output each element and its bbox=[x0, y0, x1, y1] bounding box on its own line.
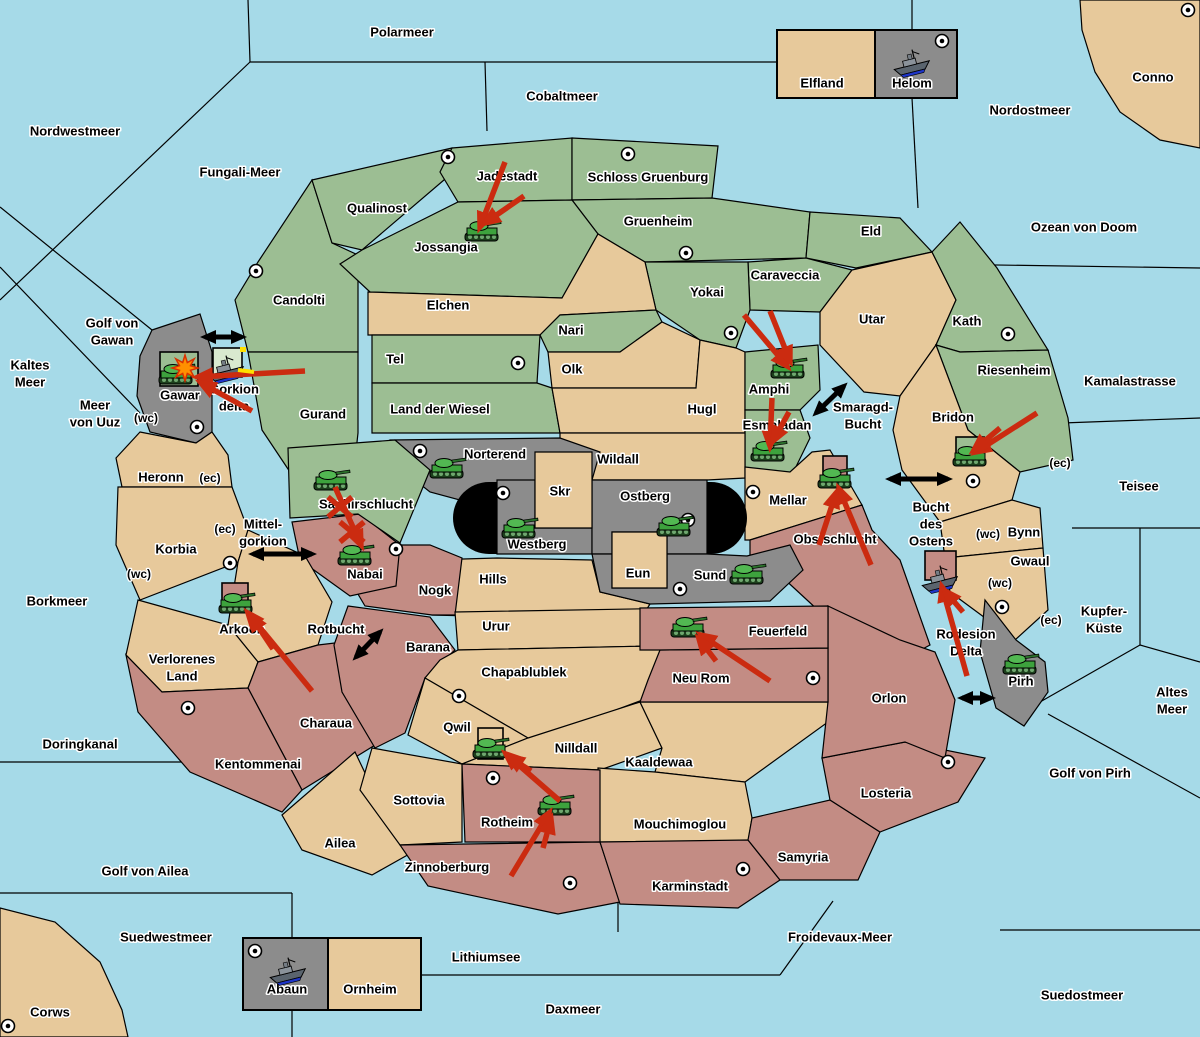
region-label-kaaldewaa: Kaaldewaa bbox=[625, 754, 693, 769]
region-label-orlon: Orlon bbox=[872, 690, 907, 705]
region-label-urur: Urur bbox=[482, 618, 509, 633]
tank-icon-ostberg[interactable] bbox=[657, 516, 693, 536]
region-label-corws: Corws bbox=[30, 1004, 70, 1019]
tank-icon-arkoon[interactable] bbox=[219, 593, 255, 613]
region-label-kath: Kath bbox=[953, 313, 982, 328]
sea-label-nordostmeer: Nordostmeer bbox=[990, 102, 1071, 117]
coast-tag: (wc) bbox=[127, 567, 151, 581]
region-label-korbia: Korbia bbox=[155, 541, 197, 556]
city-marker-icon bbox=[1002, 328, 1015, 341]
region-label-gruenheim: Gruenheim bbox=[624, 213, 693, 228]
region-label-yokai: Yokai bbox=[690, 284, 724, 299]
sea-label-lithiumsee: Lithiumsee bbox=[452, 949, 521, 964]
region-label-helom: Helom bbox=[892, 75, 932, 90]
city-marker-icon bbox=[224, 557, 237, 570]
city-marker-icon bbox=[622, 148, 635, 161]
city-marker-icon bbox=[250, 265, 263, 278]
region-label-bynn: Bynn bbox=[1008, 524, 1041, 539]
region-label-jossangia: Jossangia bbox=[414, 239, 478, 254]
city-marker-icon bbox=[442, 151, 455, 164]
coast-tag: (ec) bbox=[1049, 456, 1070, 470]
tank-icon-westberg[interactable] bbox=[502, 518, 538, 538]
coast-tag: (ec) bbox=[1040, 613, 1061, 627]
region-karminstadt[interactable] bbox=[600, 840, 780, 908]
city-marker-icon bbox=[737, 863, 750, 876]
sea-label-golf-von-ailea: Golf von Ailea bbox=[102, 863, 190, 878]
city-marker-icon bbox=[191, 421, 204, 434]
tank-icon-nabai[interactable] bbox=[338, 545, 374, 565]
region-label-samyria: Samyria bbox=[778, 849, 829, 864]
region-label-eun: Eun bbox=[626, 565, 651, 580]
region-label-norterend: Norterend bbox=[464, 446, 526, 461]
sea-label-altes-meer: Meer bbox=[1157, 701, 1187, 716]
region-label-tel: Tel bbox=[386, 351, 404, 366]
coast-tag: (ec) bbox=[214, 522, 235, 536]
region-label-kentommenai: Kentommenai bbox=[215, 756, 301, 771]
region-label-ailea: Ailea bbox=[324, 835, 356, 850]
city-marker-icon bbox=[564, 877, 577, 890]
city-marker-icon bbox=[249, 945, 262, 958]
city-marker-icon bbox=[512, 357, 525, 370]
sea-label-rodesion-delta: Rodesion bbox=[936, 626, 995, 641]
sea-label-fungali-meer: Fungali-Meer bbox=[200, 164, 281, 179]
region-label-zinnoberburg: Zinnoberburg bbox=[405, 859, 490, 874]
region-label-olk: Olk bbox=[562, 361, 584, 376]
region-label-heronn: Heronn bbox=[138, 469, 184, 484]
coast-tag: (ec) bbox=[199, 471, 220, 485]
city-marker-icon bbox=[497, 487, 510, 500]
sea-label-smaragd-bucht: Smaragd- bbox=[833, 399, 893, 414]
sea-label-nordwestmeer: Nordwestmeer bbox=[30, 123, 120, 138]
highlight-mark bbox=[238, 370, 254, 372]
map-canvas: CandoltiQualinostJadestadtSchloss Gruenb… bbox=[0, 0, 1200, 1037]
region-label-conno: Conno bbox=[1132, 69, 1173, 84]
sea-label-meer-von-uuz: Meer bbox=[80, 397, 110, 412]
region-label-qualinost: Qualinost bbox=[347, 200, 408, 215]
sea-label-kamalastrasse: Kamalastrasse bbox=[1084, 373, 1176, 388]
game-map: CandoltiQualinostJadestadtSchloss Gruenb… bbox=[0, 0, 1200, 1037]
region-label-caraveccia: Caraveccia bbox=[751, 267, 820, 282]
region-label-chapablublek: Chapablublek bbox=[481, 664, 567, 679]
region-label-eld: Eld bbox=[861, 223, 881, 238]
region-label-gurand: Gurand bbox=[300, 406, 346, 421]
sea-label-froidevaux-meer: Froidevaux-Meer bbox=[788, 929, 892, 944]
region-label-ornheim: Ornheim bbox=[343, 981, 396, 996]
region-label-elchen: Elchen bbox=[427, 297, 470, 312]
sea-label-suedwestmeer: Suedwestmeer bbox=[120, 929, 212, 944]
region-label-neu-rom: Neu Rom bbox=[672, 670, 729, 685]
tank-icon-qwil[interactable] bbox=[473, 738, 509, 758]
region-ornheim[interactable] bbox=[328, 938, 421, 1010]
region-label-mouchimoglou: Mouchimoglou bbox=[634, 816, 726, 831]
sea-label-golf-von-gawan: Gawan bbox=[91, 332, 134, 347]
city-marker-icon bbox=[453, 690, 466, 703]
city-marker-icon bbox=[674, 583, 687, 596]
region-label-hills: Hills bbox=[479, 571, 506, 586]
city-marker-icon bbox=[967, 475, 980, 488]
region-label-karminstadt: Karminstadt bbox=[652, 878, 729, 893]
region-label-amphi: Amphi bbox=[749, 381, 789, 396]
sea-label-ozean-von-doom: Ozean von Doom bbox=[1031, 219, 1137, 234]
coast-tag: (wc) bbox=[988, 576, 1012, 590]
region-label-westberg: Westberg bbox=[508, 536, 567, 551]
region-label-hugl: Hugl bbox=[688, 401, 717, 416]
sea-label-borkmeer: Borkmeer bbox=[27, 593, 88, 608]
sea-label-meer-von-uuz: von Uuz bbox=[70, 414, 121, 429]
coast-tag: (wc) bbox=[134, 411, 158, 425]
tank-icon-saphirschlucht[interactable] bbox=[314, 470, 350, 490]
tank-icon-sund[interactable] bbox=[730, 564, 766, 584]
region-label-utar: Utar bbox=[859, 311, 885, 326]
sea-label-altes-meer: Altes bbox=[1156, 684, 1188, 699]
tank-icon-mellar[interactable] bbox=[818, 468, 854, 488]
city-marker-icon bbox=[725, 327, 738, 340]
sea-label-suedostmeer: Suedostmeer bbox=[1041, 987, 1123, 1002]
sea-label-golf-von-gawan: Golf von bbox=[86, 315, 139, 330]
region-label-rotheim: Rotheim bbox=[481, 814, 533, 829]
sea-label-polarmeer: Polarmeer bbox=[370, 24, 434, 39]
city-marker-icon bbox=[414, 445, 427, 458]
region-label-nogk: Nogk bbox=[419, 582, 452, 597]
region-label-land-der-wiesel: Land der Wiesel bbox=[390, 401, 490, 416]
region-label-gawar: Gawar bbox=[160, 387, 200, 402]
sea-label-kaltes-meer: Kaltes bbox=[10, 357, 49, 372]
region-label-elfland: Elfland bbox=[800, 75, 843, 90]
sea-label-teisee: Teisee bbox=[1119, 478, 1159, 493]
city-marker-icon bbox=[390, 543, 403, 556]
region-label-bridon: Bridon bbox=[932, 409, 974, 424]
region-label-losteria: Losteria bbox=[861, 785, 912, 800]
city-marker-icon bbox=[487, 772, 500, 785]
region-label-ostberg: Ostberg bbox=[620, 488, 670, 503]
region-label-schloss-gruenburg: Schloss Gruenburg bbox=[588, 169, 709, 184]
city-marker-icon bbox=[680, 247, 693, 260]
explosion-icon bbox=[172, 355, 198, 381]
city-marker-icon bbox=[807, 672, 820, 685]
region-label-barana: Barana bbox=[406, 639, 451, 654]
region-label-nilldall: Nilldall bbox=[555, 740, 598, 755]
sea-label-cobaltmeer: Cobaltmeer bbox=[526, 88, 598, 103]
sea-label-bucht-des-ostens: Bucht bbox=[913, 499, 951, 514]
region-label-nabai: Nabai bbox=[347, 566, 382, 581]
sea-label-doringkanal: Doringkanal bbox=[42, 736, 117, 751]
region-label-jadestadt: Jadestadt bbox=[477, 168, 538, 183]
sea-label-daxmeer: Daxmeer bbox=[546, 1001, 601, 1016]
coast-tag: (wc) bbox=[976, 527, 1000, 541]
tank-icon-norterend[interactable] bbox=[430, 458, 466, 478]
sea-label-golf-von-pirh: Golf von Pirh bbox=[1049, 765, 1131, 780]
city-marker-icon bbox=[747, 486, 760, 499]
region-label-gwaul: Gwaul bbox=[1010, 553, 1049, 568]
region-label-candolti: Candolti bbox=[273, 292, 325, 307]
sea-label-rotbucht: Rotbucht bbox=[307, 621, 365, 636]
city-marker-icon bbox=[936, 35, 949, 48]
region-label-qwil: Qwil bbox=[443, 719, 470, 734]
sea-label-bucht-des-ostens: Ostens bbox=[909, 533, 953, 548]
sea-label-kupfer-k-ste: Küste bbox=[1086, 620, 1122, 635]
tank-icon-pirh[interactable] bbox=[1003, 654, 1039, 674]
region-label-feuerfeld: Feuerfeld bbox=[749, 623, 808, 638]
region-label-skr: Skr bbox=[550, 483, 571, 498]
sea-label-kaltes-meer: Meer bbox=[15, 374, 45, 389]
sea-label-kupfer-k-ste: Kupfer- bbox=[1081, 603, 1127, 618]
sea-label-mittel-gorkion: gorkion bbox=[239, 533, 287, 548]
sea-label-smaragd-bucht: Bucht bbox=[845, 416, 883, 431]
region-label-wildall: Wildall bbox=[597, 451, 639, 466]
region-label-riesenheim: Riesenheim bbox=[978, 362, 1051, 377]
city-marker-icon bbox=[182, 702, 195, 715]
city-marker-icon bbox=[1182, 4, 1195, 17]
city-marker-icon bbox=[996, 601, 1009, 614]
region-label-verlorenes-land: Land bbox=[166, 668, 197, 683]
region-label-nari: Nari bbox=[558, 322, 583, 337]
region-label-verlorenes-land: Verlorenes bbox=[149, 651, 216, 666]
sea-label-rodesion-delta: Delta bbox=[950, 643, 983, 658]
region-label-mellar: Mellar bbox=[769, 492, 807, 507]
highlight-mark bbox=[240, 347, 246, 352]
sea-label-bucht-des-ostens: des bbox=[920, 516, 942, 531]
city-marker-icon bbox=[2, 1020, 15, 1033]
region-label-sottovia: Sottovia bbox=[393, 792, 445, 807]
city-marker-icon bbox=[942, 756, 955, 769]
region-label-sund: Sund bbox=[694, 567, 727, 582]
region-label-pirh: Pirh bbox=[1008, 673, 1033, 688]
sea-label-mittel-gorkion: Mittel- bbox=[244, 516, 282, 531]
region-label-charaua: Charaua bbox=[300, 715, 353, 730]
